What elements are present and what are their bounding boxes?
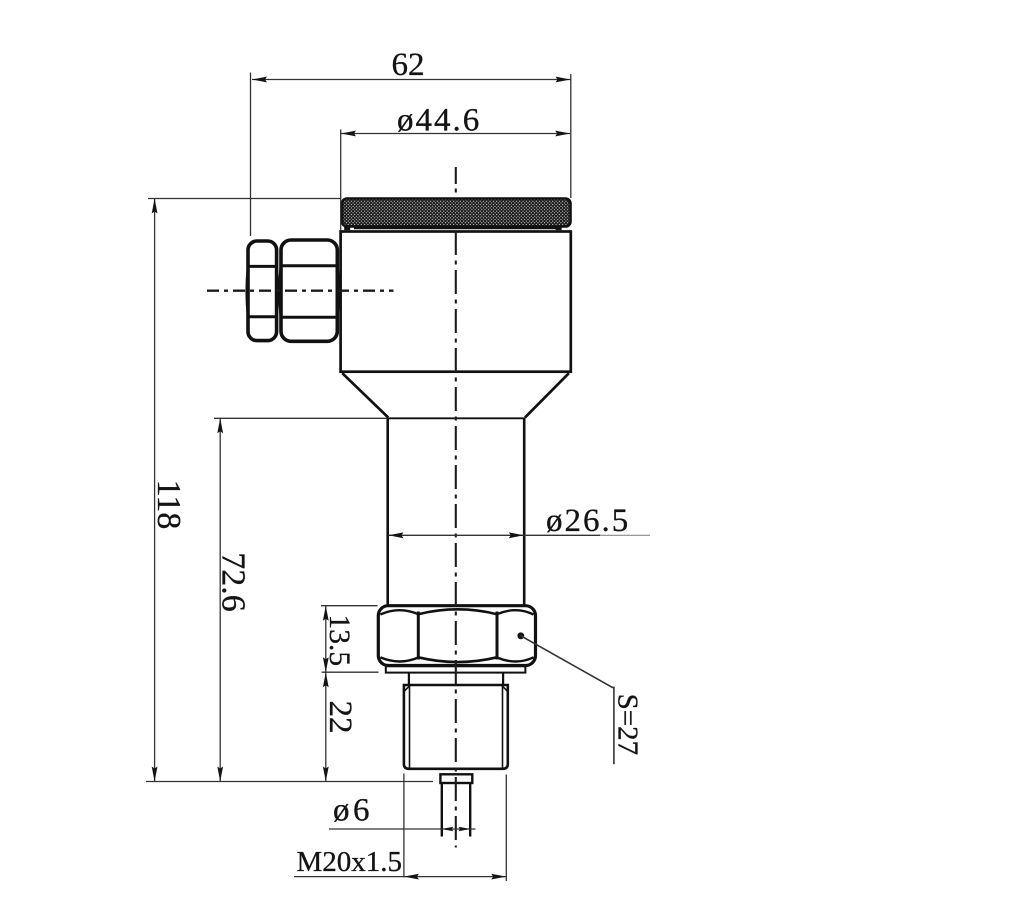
svg-text:72.6: 72.6: [215, 552, 252, 612]
svg-text:ø6: ø6: [333, 793, 373, 829]
svg-text:S=27: S=27: [612, 694, 644, 755]
svg-text:22: 22: [322, 701, 358, 734]
svg-text:62: 62: [392, 47, 425, 83]
svg-text:M20x1.5: M20x1.5: [297, 846, 403, 878]
svg-text:118: 118: [150, 480, 187, 530]
svg-text:13.5: 13.5: [323, 614, 355, 666]
svg-text:ø44.6: ø44.6: [397, 103, 481, 139]
svg-text:ø26.5: ø26.5: [546, 503, 630, 539]
